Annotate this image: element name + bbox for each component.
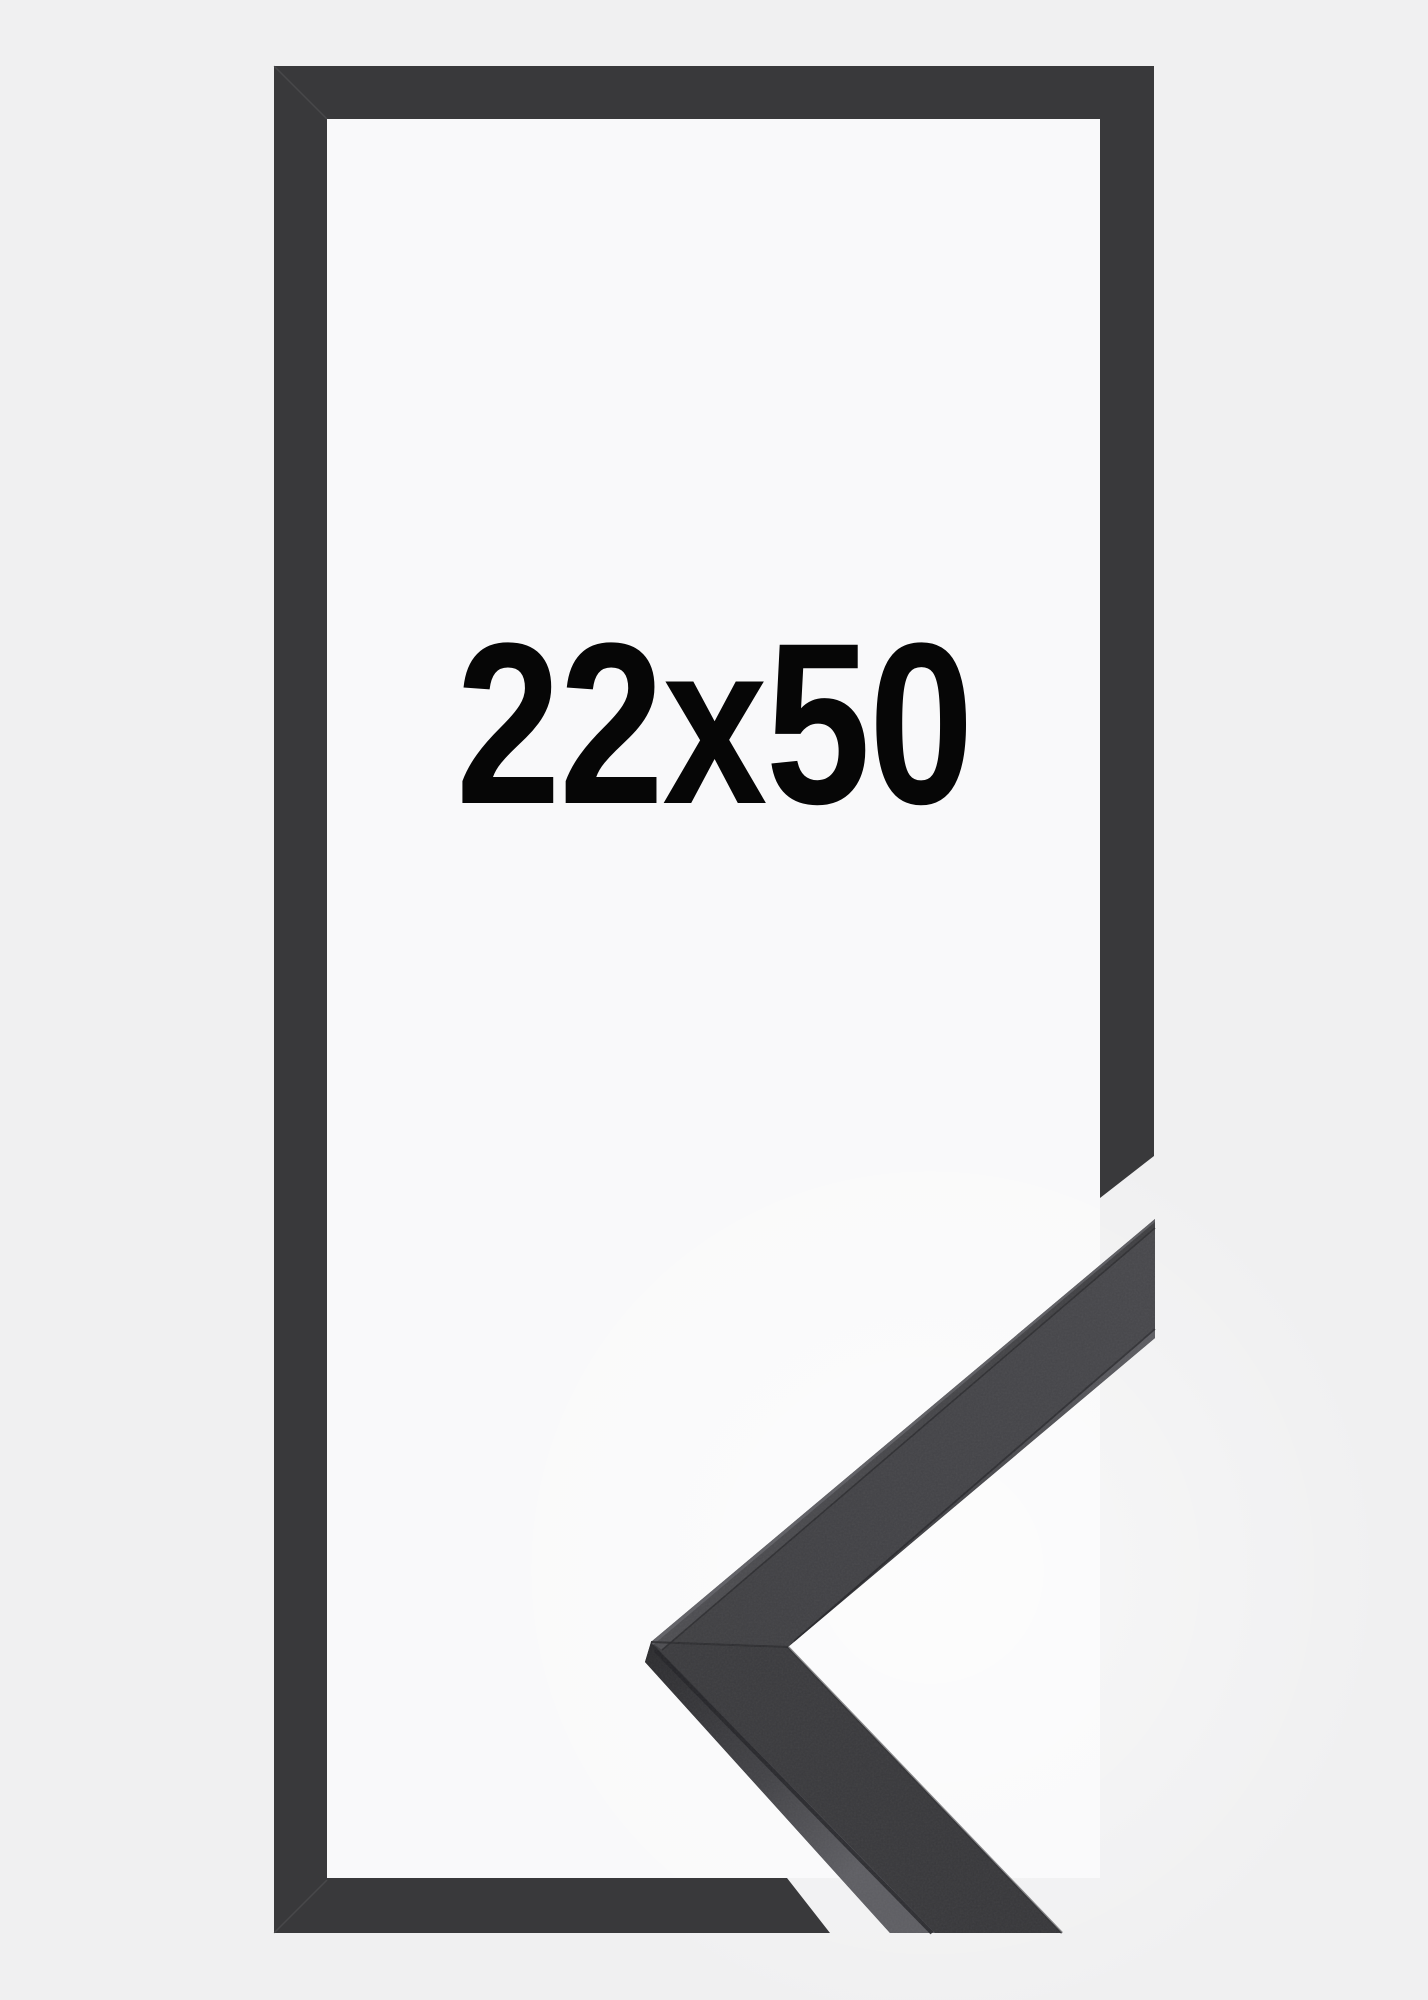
size-label: 22x50 — [456, 595, 972, 852]
product-photo-frame-22x50: 22x50 — [0, 0, 1428, 2000]
size-label-group: 22x50 — [456, 595, 972, 852]
frame-left-bar — [274, 66, 327, 1933]
frame-bottom-bar — [274, 1878, 830, 1933]
frame-right-bar — [1100, 66, 1154, 1198]
product-image: 22x50 — [0, 0, 1428, 2000]
frame-top-bar — [274, 66, 1154, 119]
